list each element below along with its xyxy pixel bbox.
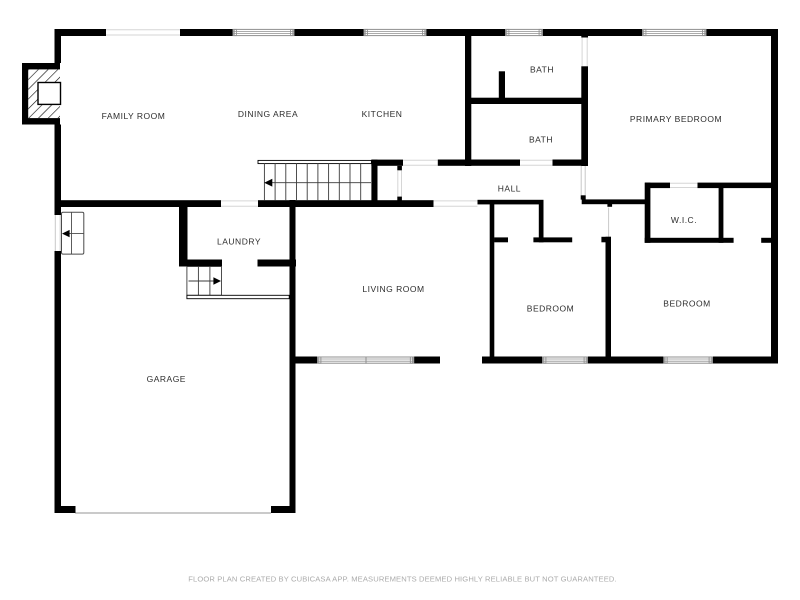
svg-text:BATH: BATH	[529, 135, 553, 145]
svg-text:BEDROOM: BEDROOM	[527, 303, 574, 313]
svg-text:PRIMARY BEDROOM: PRIMARY BEDROOM	[630, 114, 722, 124]
svg-text:KITCHEN: KITCHEN	[362, 109, 403, 119]
svg-text:GARAGE: GARAGE	[147, 374, 186, 384]
svg-text:W.I.C.: W.I.C.	[671, 215, 697, 225]
svg-text:FAMILY ROOM: FAMILY ROOM	[102, 111, 166, 121]
svg-text:LIVING ROOM: LIVING ROOM	[362, 284, 424, 294]
svg-text:FLOOR PLAN CREATED BY CUBICASA: FLOOR PLAN CREATED BY CUBICASA APP. MEAS…	[188, 574, 617, 583]
svg-text:HALL: HALL	[498, 183, 521, 193]
svg-text:LAUNDRY: LAUNDRY	[217, 237, 261, 247]
svg-text:BEDROOM: BEDROOM	[663, 298, 710, 308]
svg-text:BATH: BATH	[530, 65, 554, 75]
svg-text:DINING AREA: DINING AREA	[238, 109, 298, 119]
